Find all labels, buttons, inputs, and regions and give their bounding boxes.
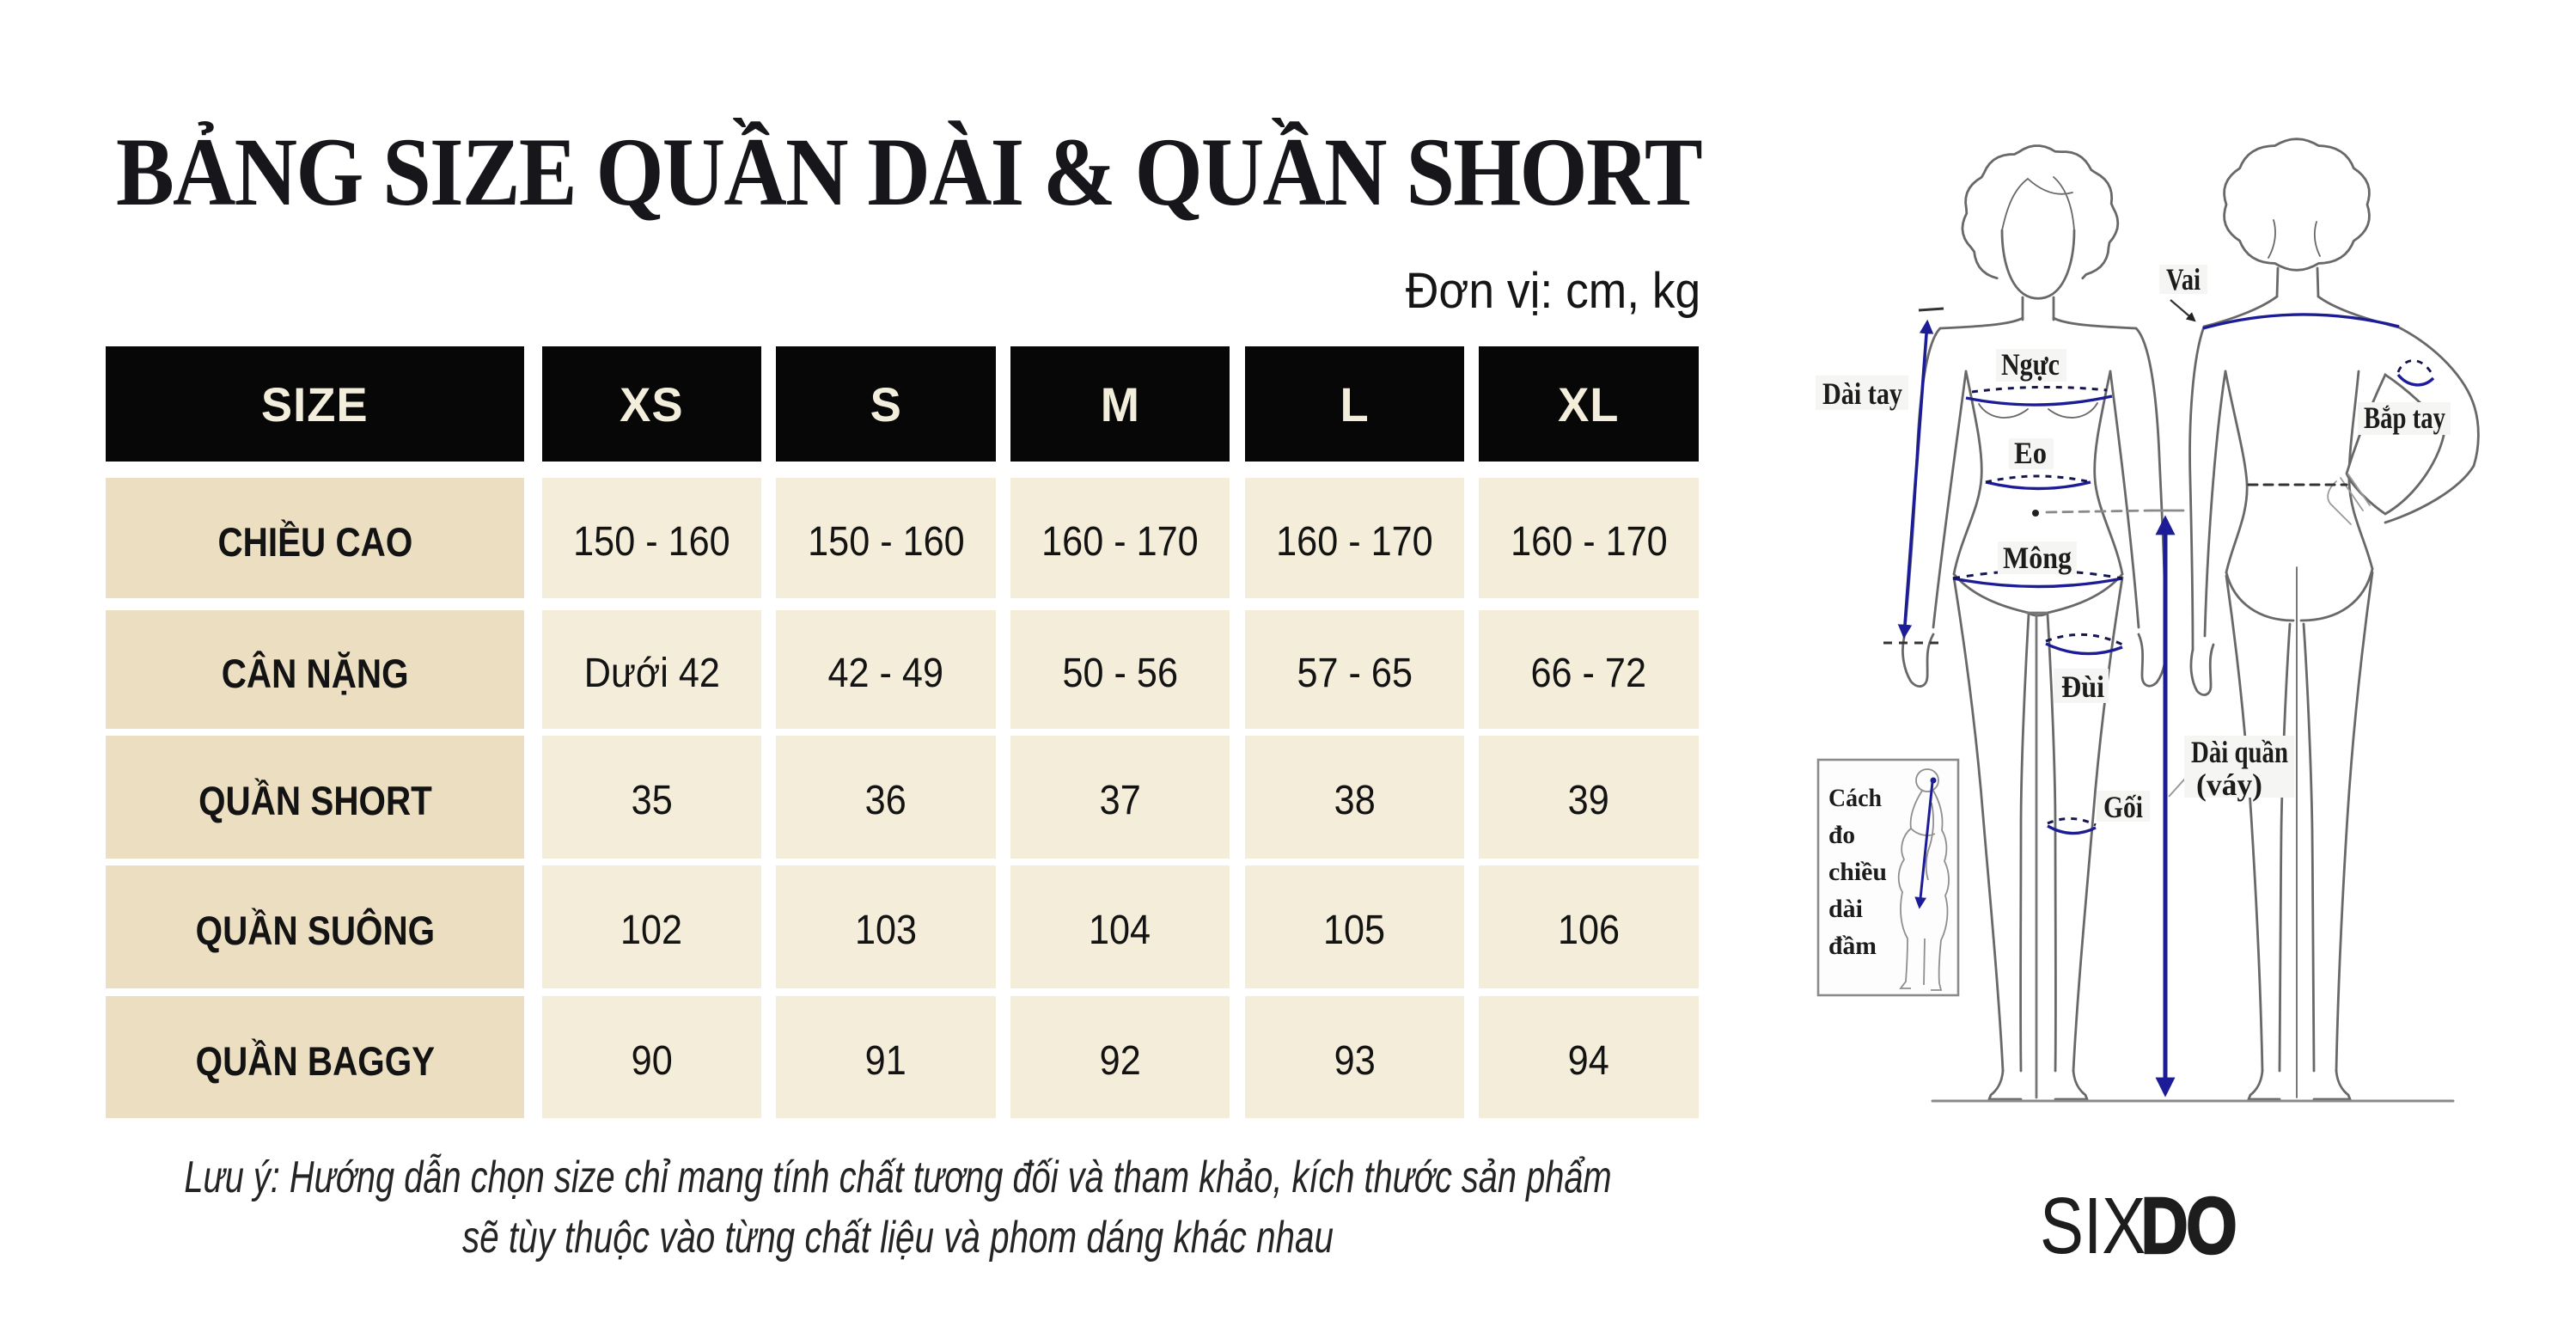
svg-text:Bắp tay: Bắp tay (2364, 401, 2445, 435)
svg-text:Dài tay: Dài tay (1822, 376, 1902, 411)
svg-text:Dài quần: Dài quần (2191, 735, 2288, 769)
svg-text:Vai: Vai (2166, 262, 2201, 297)
svg-text:Ngực: Ngực (2001, 347, 2060, 382)
svg-text:Mông: Mông (2003, 541, 2072, 575)
svg-text:dài: dài (1828, 895, 1863, 923)
svg-text:(váy): (váy) (2196, 767, 2262, 802)
svg-text:Gối: Gối (2103, 790, 2143, 824)
svg-text:Eo: Eo (2014, 436, 2047, 470)
svg-text:chiều: chiều (1828, 858, 1887, 886)
svg-text:Cách: Cách (1828, 784, 1882, 812)
svg-text:đo: đo (1828, 821, 1855, 849)
svg-text:đầm: đầm (1828, 932, 1877, 960)
svg-text:Đùi: Đùi (2061, 670, 2104, 704)
